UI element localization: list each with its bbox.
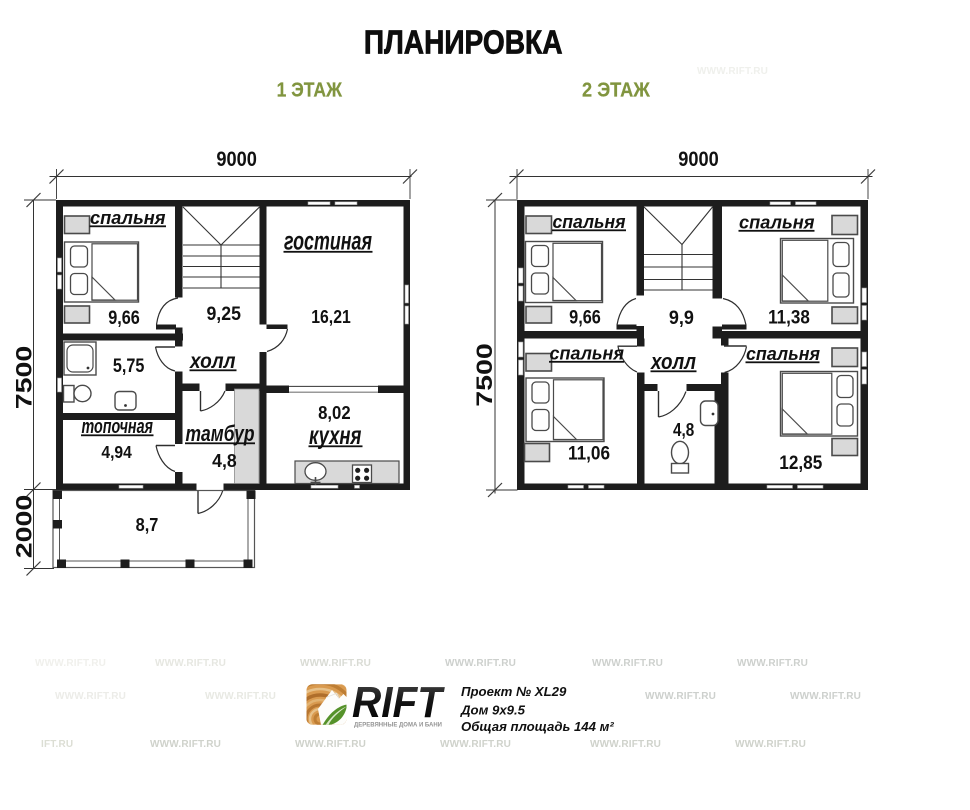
svg-text:5,75: 5,75 (113, 356, 145, 377)
svg-text:RIFT: RIFT (352, 678, 445, 727)
svg-text:ДЕРЕВЯННЫЕ ДОМА И БАНИ: ДЕРЕВЯННЫЕ ДОМА И БАНИ (354, 721, 442, 728)
svg-text:IFT.RU: IFT.RU (41, 739, 73, 750)
svg-text:WWW.RIFT.RU: WWW.RIFT.RU (295, 739, 366, 750)
svg-text:WWW.RIFT.RU: WWW.RIFT.RU (645, 691, 716, 702)
svg-text:Общая площадь 144 м²: Общая площадь 144 м² (461, 719, 614, 734)
svg-text:11,06: 11,06 (568, 443, 610, 465)
svg-text:WWW.RIFT.RU: WWW.RIFT.RU (150, 739, 221, 750)
svg-text:спальня: спальня (746, 343, 820, 364)
svg-text:7500: 7500 (12, 346, 37, 410)
svg-text:холл: холл (650, 349, 696, 374)
svg-text:8,02: 8,02 (318, 403, 351, 423)
svg-text:4,8: 4,8 (212, 450, 237, 471)
svg-text:WWW.RIFT.RU: WWW.RIFT.RU (790, 691, 861, 702)
svg-text:12,85: 12,85 (779, 453, 822, 474)
svg-text:WWW.RIFT.RU: WWW.RIFT.RU (737, 658, 808, 669)
svg-text:9000: 9000 (216, 148, 257, 171)
svg-text:WWW.RIFT.RU: WWW.RIFT.RU (697, 66, 768, 77)
svg-text:WWW.RIFT.RU: WWW.RIFT.RU (205, 691, 276, 702)
svg-text:8,7: 8,7 (136, 515, 159, 535)
svg-text:16,21: 16,21 (311, 306, 351, 327)
svg-text:4,8: 4,8 (673, 419, 694, 440)
svg-text:спальня: спальня (90, 207, 166, 228)
svg-text:7500: 7500 (472, 343, 497, 407)
svg-text:2000: 2000 (12, 495, 37, 559)
svg-text:спальня: спальня (553, 211, 626, 232)
svg-text:2 ЭТАЖ: 2 ЭТАЖ (582, 80, 651, 102)
svg-text:9,66: 9,66 (108, 308, 140, 329)
svg-text:9,9: 9,9 (669, 307, 694, 329)
svg-text:1 ЭТАЖ: 1 ЭТАЖ (277, 80, 343, 102)
svg-text:9,25: 9,25 (206, 304, 241, 325)
svg-text:9,66: 9,66 (569, 308, 601, 329)
svg-text:11,38: 11,38 (768, 308, 810, 329)
svg-text:WWW.RIFT.RU: WWW.RIFT.RU (590, 739, 661, 750)
svg-text:WWW.RIFT.RU: WWW.RIFT.RU (592, 658, 663, 669)
svg-text:WWW.RIFT.RU: WWW.RIFT.RU (35, 658, 106, 669)
svg-text:Дом 9х9.5: Дом 9х9.5 (460, 703, 526, 718)
svg-text:спальня: спальня (550, 343, 625, 364)
svg-text:9000: 9000 (678, 148, 719, 171)
svg-text:WWW.RIFT.RU: WWW.RIFT.RU (735, 739, 806, 750)
svg-text:Проект № XL29: Проект № XL29 (461, 684, 567, 699)
svg-text:WWW.RIFT.RU: WWW.RIFT.RU (440, 739, 511, 750)
svg-text:WWW.RIFT.RU: WWW.RIFT.RU (55, 691, 126, 702)
svg-text:тамбур: тамбур (186, 421, 255, 446)
svg-text:спальня: спальня (739, 212, 815, 233)
svg-text:WWW.RIFT.RU: WWW.RIFT.RU (300, 658, 371, 669)
svg-text:WWW.RIFT.RU: WWW.RIFT.RU (155, 658, 226, 669)
svg-text:ПЛАНИРОВКА: ПЛАНИРОВКА (364, 24, 563, 61)
svg-text:WWW.RIFT.RU: WWW.RIFT.RU (445, 658, 516, 669)
svg-text:4,94: 4,94 (101, 442, 132, 462)
